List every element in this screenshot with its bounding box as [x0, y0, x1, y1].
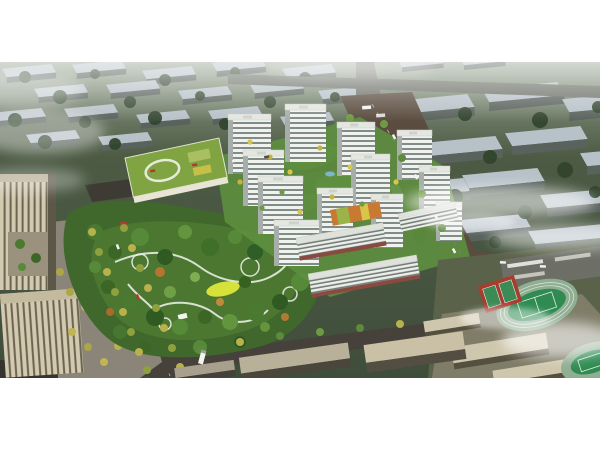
screenshot	[0, 0, 600, 450]
render-canvas	[0, 62, 600, 378]
office-courtyard	[8, 232, 48, 276]
courtyard-pool	[325, 172, 335, 177]
aerial-render	[0, 62, 600, 378]
